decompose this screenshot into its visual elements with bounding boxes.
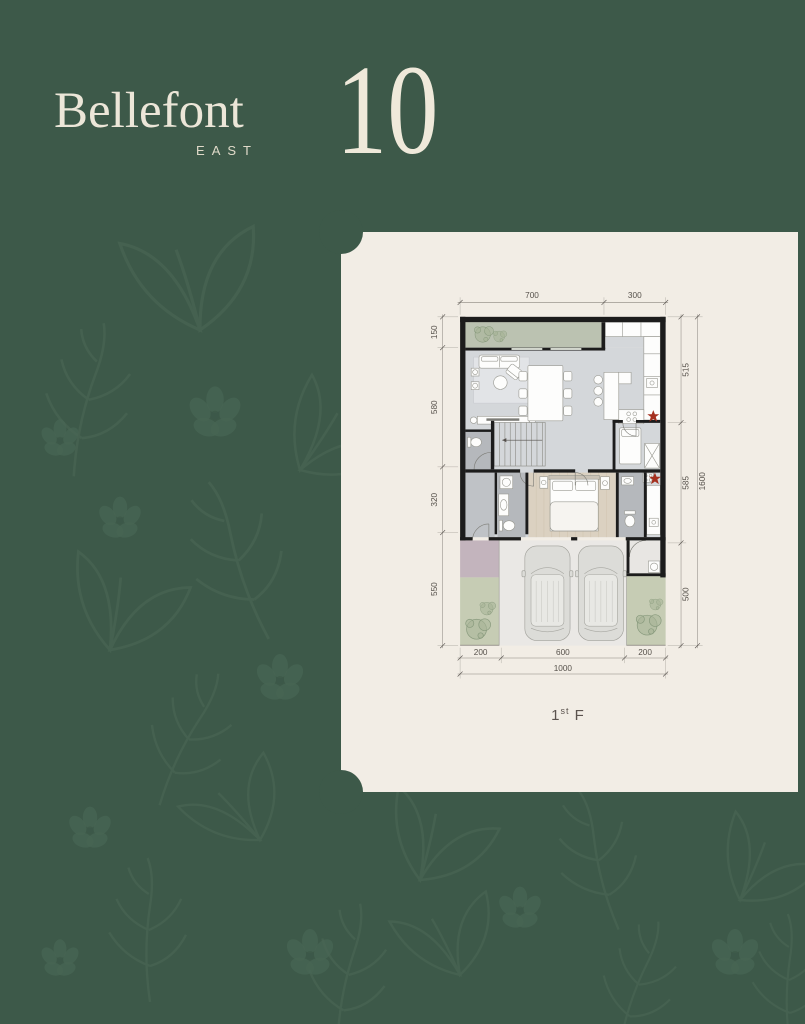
floor-plan: 700 300 150 580 320 550 515 585 500 1600… bbox=[419, 286, 717, 689]
bar-stool bbox=[594, 398, 603, 407]
kitchen-cabinet bbox=[605, 322, 660, 336]
dim-label: 1000 bbox=[554, 664, 573, 673]
dim-label: 585 bbox=[682, 476, 691, 490]
staircase bbox=[494, 422, 545, 466]
dim-label: 1600 bbox=[698, 472, 707, 491]
dining-table bbox=[528, 366, 563, 421]
floor-plan-card: 700 300 150 580 320 550 515 585 500 1600… bbox=[341, 232, 798, 792]
toilet bbox=[503, 521, 515, 531]
bar-stool bbox=[594, 386, 603, 395]
brand-name: Bellefont bbox=[54, 86, 260, 137]
dim-label: 515 bbox=[682, 363, 691, 377]
dining-area bbox=[519, 366, 572, 421]
dining-chair bbox=[564, 389, 572, 398]
floor-label: 1st F bbox=[419, 706, 717, 724]
coffee-table bbox=[494, 376, 508, 390]
dining-chair bbox=[519, 406, 527, 415]
toilet bbox=[625, 515, 635, 527]
dim-label: 200 bbox=[638, 648, 652, 657]
kitchen-island bbox=[604, 372, 619, 419]
powder-room-fixtures bbox=[468, 437, 482, 447]
dim-label: 600 bbox=[556, 648, 570, 657]
dim-label: 150 bbox=[430, 325, 439, 339]
car-2 bbox=[575, 546, 626, 641]
brand-logo: Bellefont EAST bbox=[54, 86, 260, 158]
dining-chair bbox=[519, 389, 527, 398]
counter bbox=[647, 485, 661, 534]
card-corner-notch bbox=[319, 210, 363, 254]
toilet bbox=[471, 438, 482, 447]
service-room-fixtures bbox=[648, 561, 660, 573]
dining-chair bbox=[564, 406, 572, 415]
bar-stool bbox=[594, 375, 603, 384]
window bbox=[511, 348, 542, 350]
dim-label: 500 bbox=[682, 587, 691, 601]
dining-chair bbox=[519, 371, 527, 380]
card-corner-notch bbox=[319, 770, 363, 814]
closet bbox=[465, 473, 494, 538]
dim-label: 300 bbox=[628, 291, 642, 300]
floor-ordinal: st bbox=[560, 706, 569, 716]
blanket bbox=[550, 502, 598, 531]
pillow bbox=[553, 481, 573, 490]
pillow bbox=[576, 481, 596, 490]
brand-region: EAST bbox=[54, 143, 260, 158]
car-1 bbox=[522, 546, 573, 641]
entry-porch bbox=[460, 540, 499, 577]
dim-label: 550 bbox=[430, 582, 439, 596]
unit-number: 10 bbox=[336, 46, 438, 174]
dining-chair bbox=[564, 371, 572, 380]
floor-plan-drawing: 700 300 150 580 320 550 515 585 500 1600… bbox=[419, 286, 717, 689]
floor-suffix: F bbox=[575, 707, 585, 724]
dim-label: 200 bbox=[474, 648, 488, 657]
planter-pot bbox=[470, 417, 477, 424]
dim-label: 700 bbox=[525, 291, 539, 300]
dim-label: 580 bbox=[430, 400, 439, 414]
window bbox=[551, 348, 582, 350]
dim-label: 320 bbox=[430, 492, 439, 506]
